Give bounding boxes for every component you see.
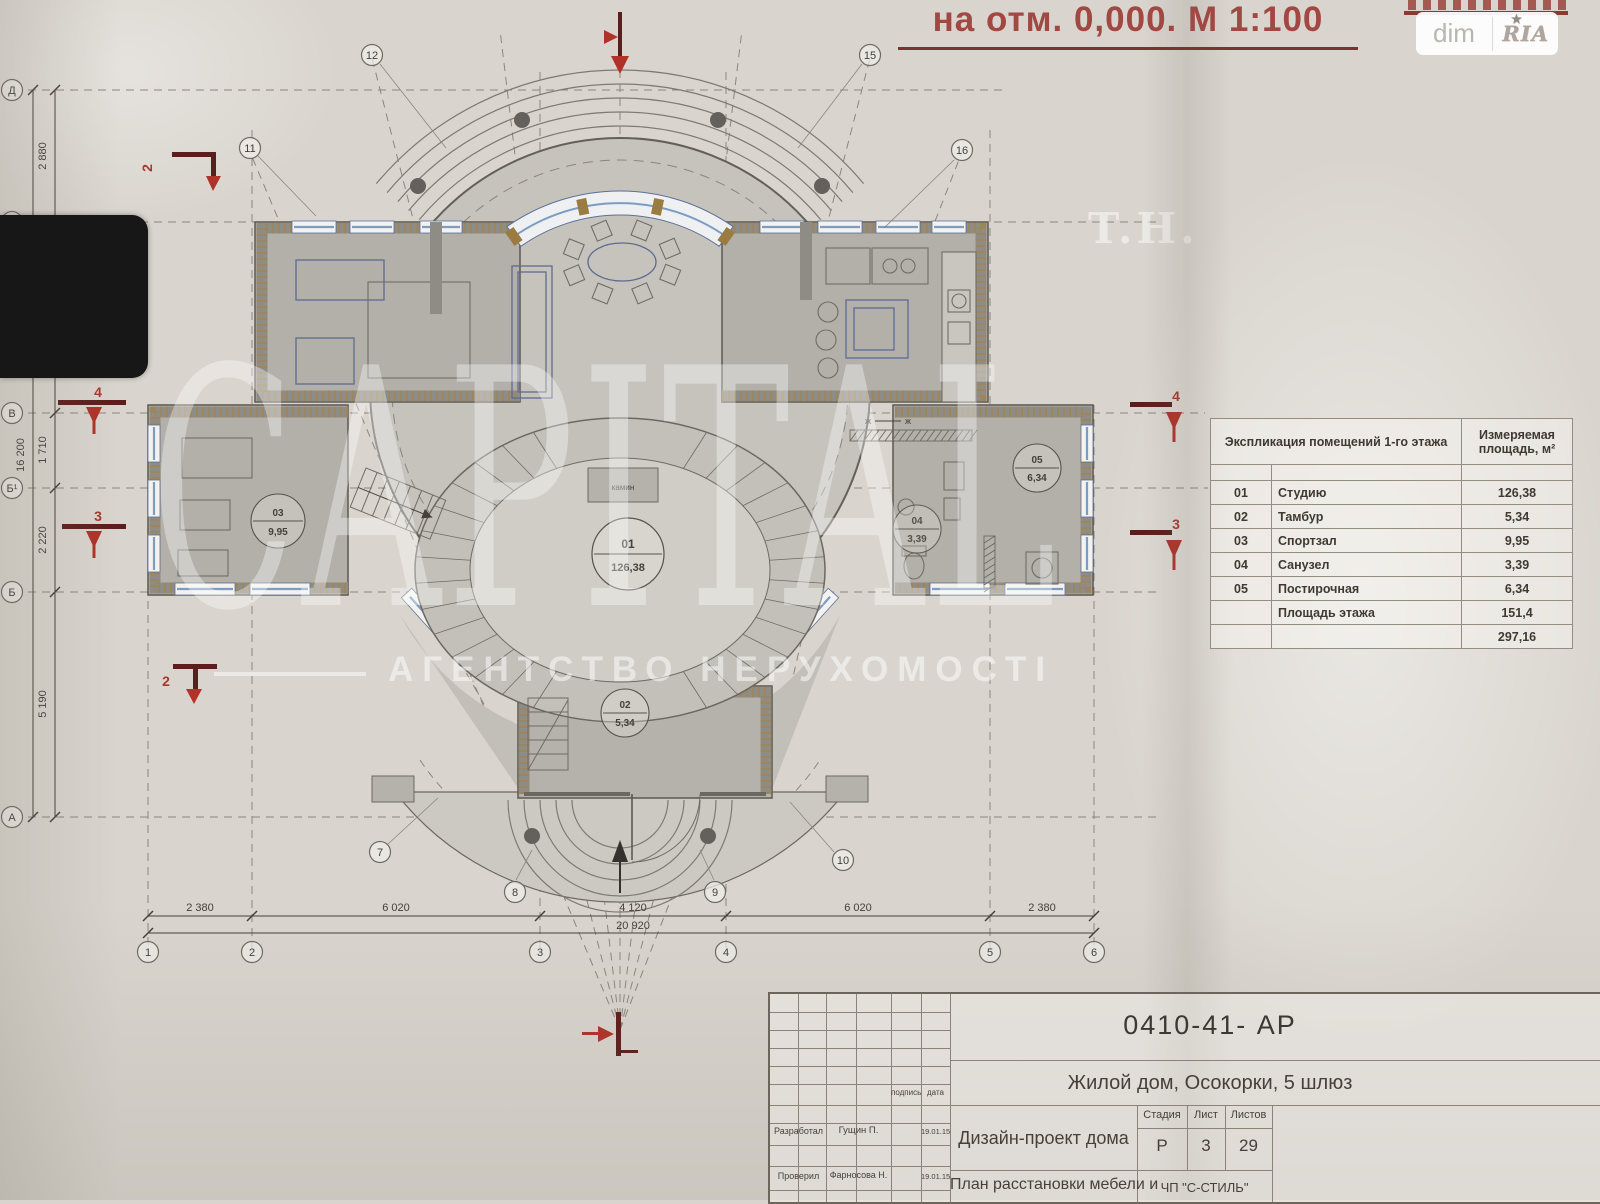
svg-text:2: 2: [139, 164, 155, 172]
developed-label: Разработал: [771, 1126, 826, 1136]
project-name: Жилой дом, Осокорки, 5 шлюз: [950, 1072, 1470, 1095]
svg-text:11: 11: [244, 143, 255, 155]
svg-text:9,95: 9,95: [268, 527, 288, 538]
svg-text:4: 4: [723, 947, 729, 959]
svg-text:20 920: 20 920: [616, 920, 650, 932]
svg-text:5 190: 5 190: [37, 690, 49, 718]
svg-text:3: 3: [94, 508, 102, 524]
explication-header-area: Измеряемая площадь, м²: [1462, 419, 1573, 465]
section-mark-4-left: 4: [58, 384, 126, 434]
svg-text:3: 3: [537, 947, 543, 959]
svg-text:Б¹: Б¹: [7, 483, 18, 495]
section-mark-3-right: 3: [1130, 516, 1182, 570]
svg-text:6: 6: [1091, 947, 1097, 959]
sign-label: подпись: [891, 1088, 921, 1097]
svg-text:16 200: 16 200: [15, 438, 27, 472]
room-tag-04: 04 3,39: [893, 505, 941, 553]
svg-text:6,34: 6,34: [1027, 473, 1047, 484]
sheet-subtitle: План расстановки мебели и: [950, 1176, 1137, 1194]
table-row: 01 Студию 126,38: [1211, 481, 1573, 505]
room-tag-01: 01 126,38: [592, 518, 664, 590]
svg-text:126,38: 126,38: [611, 562, 645, 574]
svg-text:2 380: 2 380: [186, 902, 214, 914]
section-mark-bottom: [582, 1012, 638, 1056]
photographed-floorplan-sheet: { "header": { "title": "на отм. 0,000. М…: [0, 0, 1600, 1200]
developed-date: 19.01.15: [921, 1127, 950, 1136]
svg-text:ж: ж: [905, 416, 911, 426]
developed-by: Гущин П.: [826, 1125, 891, 1136]
svg-text:2: 2: [249, 947, 255, 959]
checked-date: 19.01.15: [921, 1172, 950, 1181]
svg-text:Д: Д: [8, 85, 16, 97]
svg-text:3,39: 3,39: [907, 534, 927, 545]
svg-text:2 380: 2 380: [1028, 902, 1056, 914]
svg-text:03: 03: [272, 508, 284, 519]
room-tag-02: 02 5,34: [601, 689, 649, 737]
doc-number: 0410-41- АР: [950, 1010, 1470, 1041]
svg-text:2 220: 2 220: [37, 526, 49, 554]
svg-text:8: 8: [512, 887, 518, 899]
section-mark-3-left: 3: [62, 508, 126, 558]
checked-label: Проверил: [771, 1171, 826, 1181]
svg-text:ж: ж: [865, 416, 871, 426]
svg-text:А: А: [8, 812, 16, 824]
axis-tie-marks: ж ж: [865, 416, 911, 426]
explication-table: Экспликация помещений 1-го этажа Измеряе…: [1210, 418, 1573, 649]
svg-text:15: 15: [864, 50, 876, 62]
svg-text:3: 3: [1172, 516, 1180, 532]
section-mark-2-bottom: 2: [162, 664, 217, 704]
date-label: дата: [921, 1088, 950, 1097]
firm-name: ЧП "С-СТИЛЬ": [1137, 1180, 1272, 1195]
sheet-title: на отм. 0,000. М 1:100: [898, 0, 1358, 50]
sheets-label: Листов: [1225, 1109, 1272, 1121]
table-total-row: Площадь этажа 151,4: [1211, 601, 1573, 625]
checked-by: Фарносова Н.: [826, 1170, 891, 1180]
svg-text:16: 16: [956, 145, 968, 157]
room-tag-03: 03 9,95: [251, 494, 305, 548]
svg-text:2 880: 2 880: [37, 142, 49, 170]
svg-text:5: 5: [987, 947, 993, 959]
clipped-red-stamp: [1408, 0, 1566, 10]
svg-text:4 120: 4 120: [619, 902, 647, 914]
sheet-value: 3: [1187, 1136, 1225, 1156]
svg-text:01: 01: [621, 537, 635, 551]
svg-text:7: 7: [377, 847, 383, 859]
section-mark-top: [604, 12, 629, 74]
star-icon: ★: [1511, 12, 1523, 26]
table-grand-total-row: 297,16: [1211, 625, 1573, 649]
svg-text:9: 9: [712, 887, 718, 899]
svg-text:5,34: 5,34: [615, 718, 635, 729]
table-row: 03 Спортзал 9,95: [1211, 529, 1573, 553]
table-row: 02 Тамбур 5,34: [1211, 505, 1573, 529]
svg-text:02: 02: [619, 700, 631, 711]
ria-logo-text: ★ RIA: [1493, 21, 1558, 46]
svg-text:04: 04: [911, 516, 923, 527]
svg-text:4: 4: [94, 384, 102, 400]
stage-value: Р: [1137, 1136, 1187, 1156]
explication-header-name: Экспликация помещений 1-го этажа: [1211, 419, 1462, 465]
table-row: 04 Санузел 3,39: [1211, 553, 1573, 577]
section-mark-2-top: 2: [139, 152, 221, 191]
room-tag-05: 05 6,34: [1013, 444, 1061, 492]
stage-label: Стадия: [1137, 1109, 1187, 1121]
dim-ria-watermark-badge: dim ★ RIA: [1416, 12, 1558, 55]
svg-text:10: 10: [837, 855, 849, 867]
svg-text:2: 2: [162, 673, 170, 689]
svg-text:Б: Б: [8, 587, 15, 599]
svg-text:6 020: 6 020: [382, 902, 410, 914]
title-block: 0410-41- АР Жилой дом, Осокорки, 5 шлюз …: [768, 992, 1600, 1204]
black-redaction-box: [0, 215, 148, 378]
svg-text:6 020: 6 020: [844, 902, 872, 914]
sheets-value: 29: [1225, 1136, 1272, 1156]
svg-text:4: 4: [1172, 388, 1180, 404]
fireplace-label: камин: [612, 483, 635, 492]
section-mark-4-right: 4: [1130, 388, 1182, 442]
dim-logo-text: dim: [1416, 18, 1492, 49]
svg-text:В: В: [8, 408, 15, 420]
svg-text:1: 1: [145, 947, 151, 959]
svg-text:05: 05: [1031, 455, 1043, 466]
design-title: Дизайн-проект дома: [950, 1128, 1137, 1149]
table-row: 05 Постирочная 6,34: [1211, 577, 1573, 601]
svg-text:1 710: 1 710: [37, 436, 49, 464]
svg-text:12: 12: [366, 50, 378, 62]
sheet-label: Лист: [1187, 1109, 1225, 1121]
